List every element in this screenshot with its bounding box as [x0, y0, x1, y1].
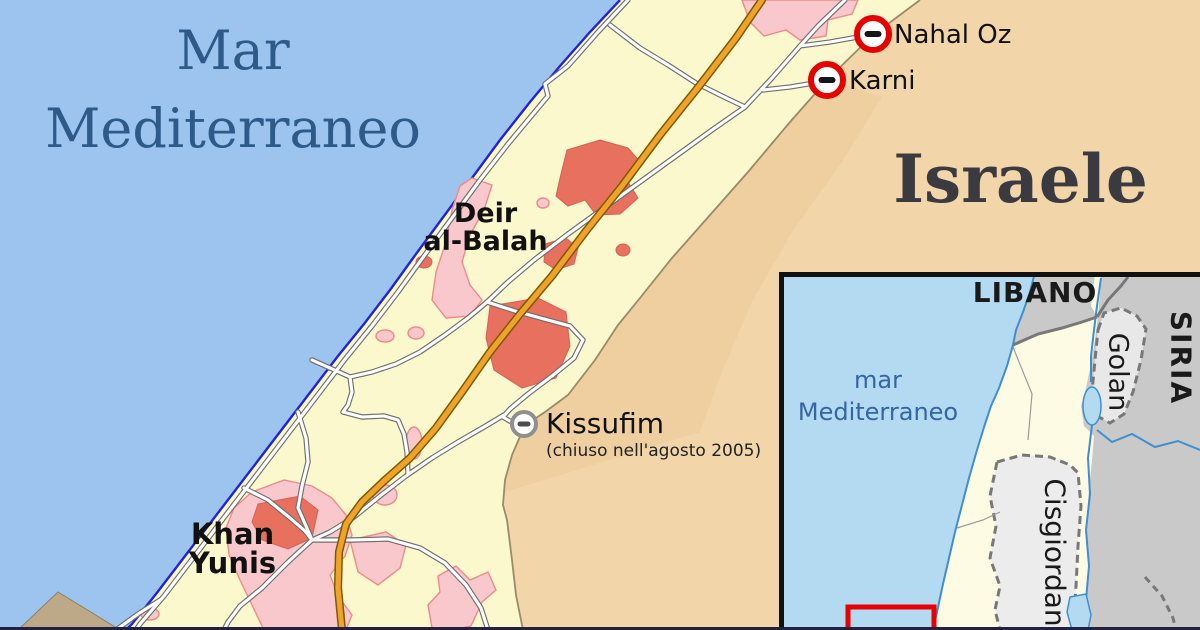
- no-entry-bar-icon: [865, 31, 882, 37]
- no-entry-bar-icon: [518, 422, 531, 427]
- inset-label-sea: mar Mediterraneo: [779, 364, 989, 428]
- crossing-note-kissufim: (chiuso nell'agosto 2005): [546, 441, 761, 461]
- lake-galilee: [1083, 387, 1101, 425]
- crossing-label-nahal-oz: Nahal Oz: [894, 21, 1011, 50]
- city-label-khan-yunis: Khan Yunis: [150, 520, 315, 578]
- inset-map-canvas: [779, 272, 1200, 630]
- crossing-label-karni: Karni: [849, 67, 915, 96]
- closed-crossing-icon-nahal-oz: [854, 15, 892, 53]
- gaza-strip-map: Mar Mediterraneo Israele Deir al-Balah K…: [0, 0, 1200, 630]
- closed-crossing-icon-karni: [808, 61, 846, 99]
- city-label-deir-al-balah: Deir al-Balah: [398, 200, 573, 256]
- inset-label-lebanon: LIBANO: [935, 276, 1135, 309]
- closed-crossing-icon-kissufim: [510, 410, 538, 438]
- inset-label-syria: SIRIA: [1165, 311, 1198, 405]
- crossing-label-kissufim: Kissufim: [546, 409, 664, 440]
- inset-label-west-bank: Cisgiordania: [1039, 478, 1072, 630]
- no-entry-bar-icon: [819, 77, 836, 83]
- israel-label: Israele: [878, 140, 1163, 218]
- inset-label-golan: Golan: [1103, 333, 1134, 412]
- sea-label: Mar Mediterraneo: [28, 12, 438, 168]
- inset-map: LIBANO SIRIA Golan Cisgiordania mar Medi…: [779, 272, 1200, 630]
